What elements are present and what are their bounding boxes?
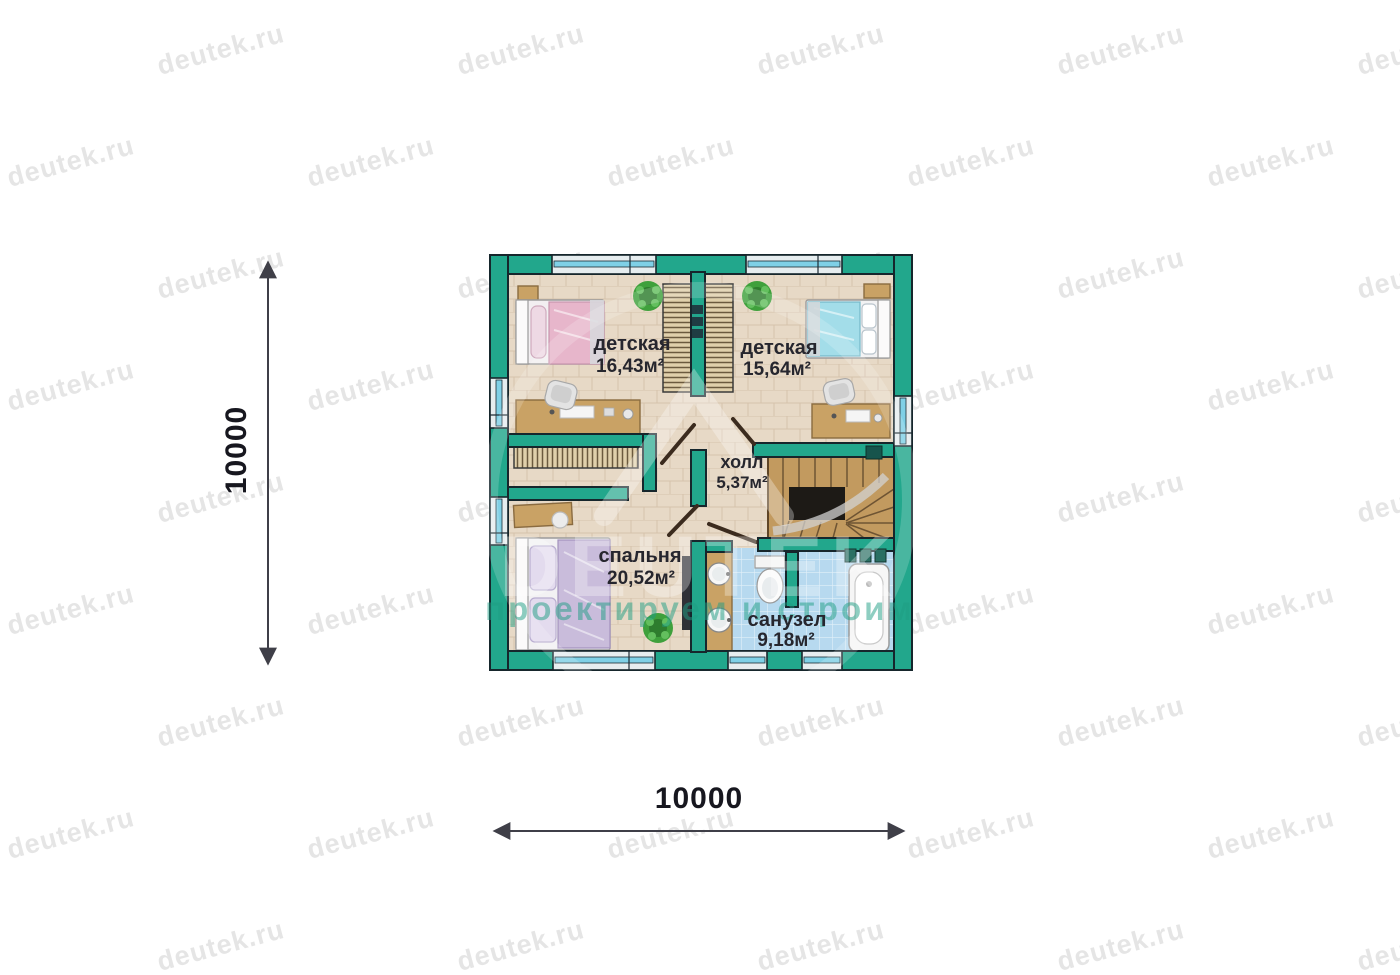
watermark-tile: deutek.ru <box>4 578 138 641</box>
watermark-tile: deutek.ru <box>454 914 588 975</box>
watermark-tile: deutek.ru <box>304 578 438 641</box>
floor-plan-page: deutek.rudeutek.rudeutek.rudeutek.rudeut… <box>0 0 1400 975</box>
watermark-tile: deutek.ru <box>1054 690 1188 753</box>
hall-area: 5,37м² <box>716 473 768 492</box>
watermark-tile: deutek.ru <box>1354 690 1400 753</box>
bathroom-area: 9,18м² <box>757 630 814 651</box>
window-bottom-bath-1 <box>728 651 767 670</box>
watermark-tile: deutek.ru <box>754 18 888 81</box>
watermark-tile: deutek.ru <box>1204 130 1338 193</box>
watermark-tile: deutek.ru <box>304 130 438 193</box>
window-top-left <box>552 255 656 274</box>
watermark-tile: deutek.ru <box>1354 466 1400 529</box>
dimension-horizontal-label: 10000 <box>655 782 743 815</box>
watermark-tile: deutek.ru <box>154 18 288 81</box>
watermark-tile: deutek.ru <box>1204 802 1338 865</box>
floor-plan-image: deutek.rudeutek.rudeutek.rudeutek.rudeut… <box>0 0 1400 975</box>
watermark-tile: deutek.ru <box>1054 242 1188 305</box>
watermark-tile: deutek.ru <box>1204 578 1338 641</box>
watermark-tile: deutek.ru <box>154 914 288 975</box>
watermark-tile: deutek.ru <box>604 130 738 193</box>
watermark-tile: deutek.ru <box>304 802 438 865</box>
watermark-tile: deutek.ru <box>904 802 1038 865</box>
wardrobe-kids-right <box>705 284 733 392</box>
bedroom-name: спальня <box>598 545 681 567</box>
wardrobe-bedroom <box>514 447 638 468</box>
dimension-vertical-label: 10000 <box>220 406 253 494</box>
hall-name: холл <box>721 452 764 472</box>
watermark-tile: deutek.ru <box>1204 354 1338 417</box>
watermark-tile: deutek.ru <box>304 354 438 417</box>
watermark-tile: deutek.ru <box>1354 242 1400 305</box>
kids-left-area: 16,43м² <box>596 356 664 377</box>
watermark-tile: deutek.ru <box>154 690 288 753</box>
watermark-tile: deutek.ru <box>904 130 1038 193</box>
bedroom-area: 20,52м² <box>607 568 675 589</box>
logo-tagline: проектируем и строим <box>485 590 915 627</box>
watermark-tile: deutek.ru <box>4 802 138 865</box>
watermark-tile: deutek.ru <box>904 578 1038 641</box>
wall-hall-stub <box>691 450 706 506</box>
watermark-tile: deutek.ru <box>4 130 138 193</box>
watermark-tile: deutek.ru <box>1054 914 1188 975</box>
watermark-tile: deutek.ru <box>4 354 138 417</box>
watermark-tile: deutek.ru <box>904 354 1038 417</box>
watermark-tile: deutek.ru <box>454 690 588 753</box>
watermark-tile: deutek.ru <box>1354 914 1400 975</box>
dimension-vertical: 10000 <box>220 264 268 662</box>
watermark-tile: deutek.ru <box>1354 18 1400 81</box>
kids-left-name: детская <box>593 333 670 355</box>
wall-kids-left-bottom <box>508 434 656 447</box>
watermark-tile: deutek.ru <box>1054 466 1188 529</box>
bathroom-name: санузел <box>748 609 827 631</box>
kids-right-area: 15,64м² <box>743 359 811 380</box>
watermark-tile: deutek.ru <box>454 18 588 81</box>
watermark-tile: deutek.ru <box>1054 18 1188 81</box>
watermark-tile: deutek.ru <box>754 914 888 975</box>
kids-right-name: детская <box>740 337 817 359</box>
window-top-right <box>746 255 842 274</box>
